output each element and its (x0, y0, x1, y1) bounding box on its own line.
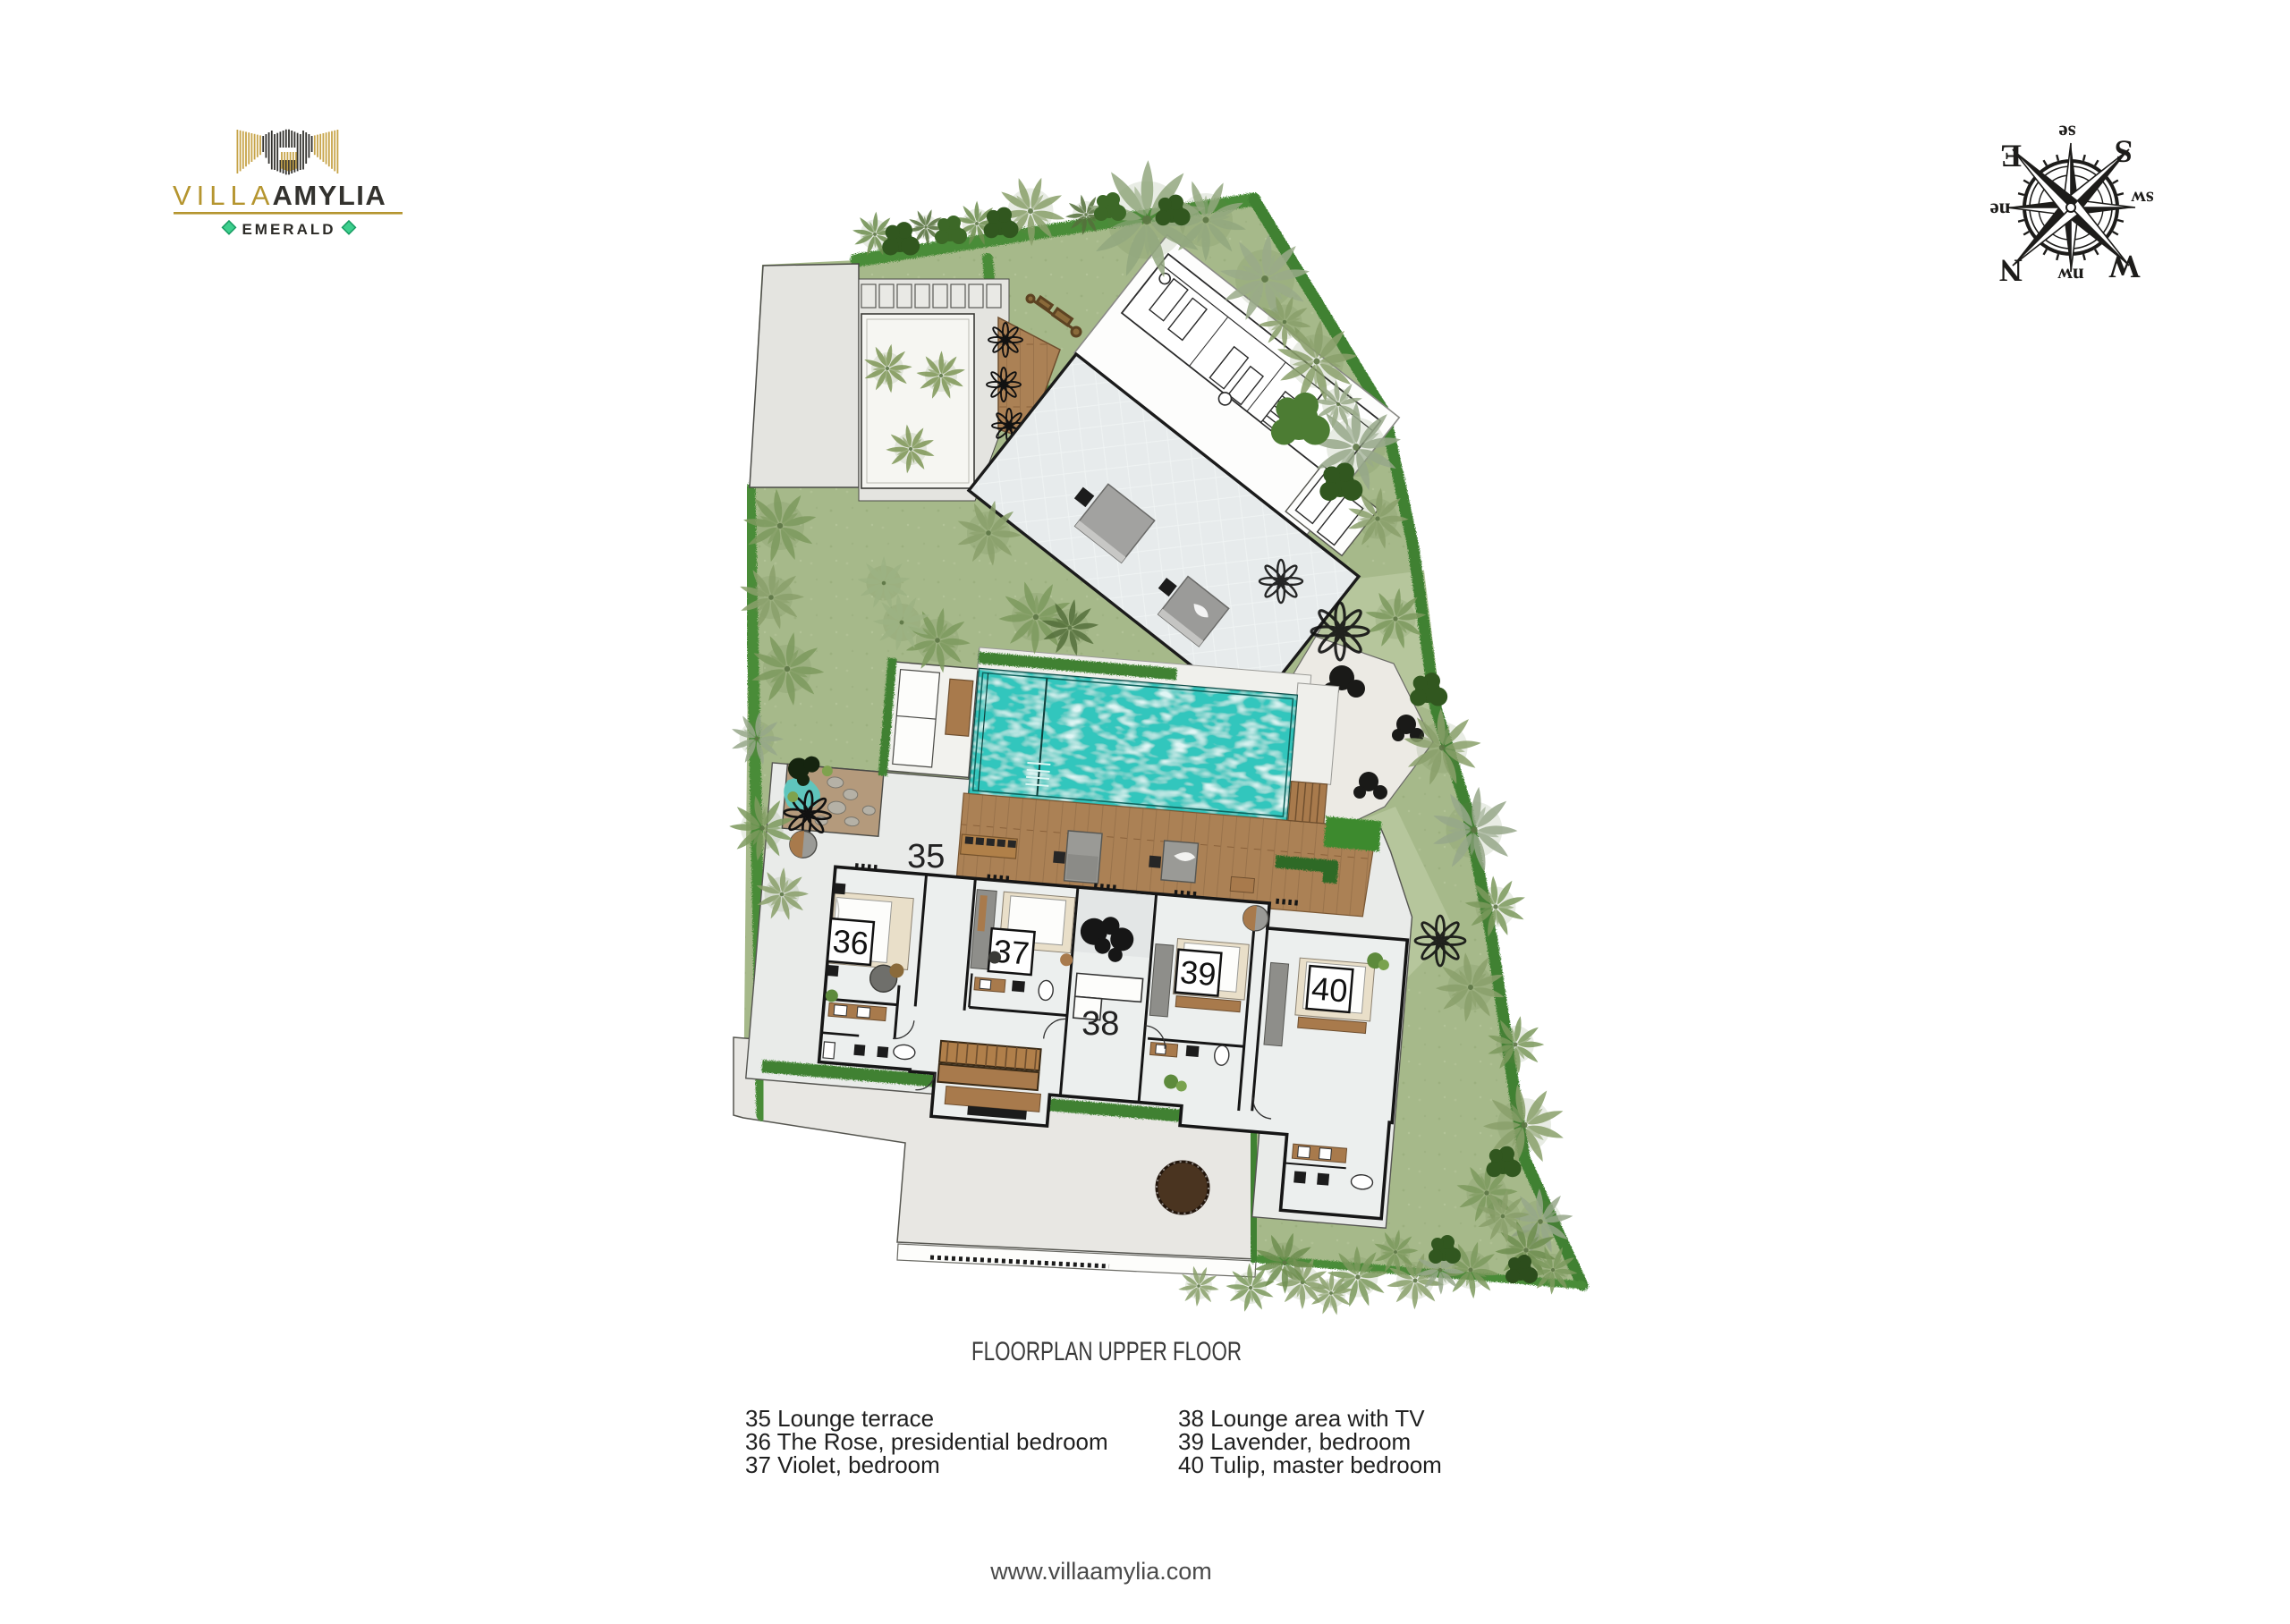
svg-text:EMERALD: EMERALD (242, 221, 335, 238)
svg-text:FLOORPLAN UPPER FLOOR: FLOORPLAN UPPER FLOOR (971, 1337, 1242, 1366)
svg-text:40 Tulip, master bedroom: 40 Tulip, master bedroom (1178, 1451, 1442, 1478)
svg-text:E: E (2000, 139, 2022, 174)
svg-text:www.villaamylia.com: www.villaamylia.com (989, 1558, 1212, 1585)
svg-text:S: S (2115, 134, 2133, 170)
svg-text:W: W (2108, 250, 2141, 285)
svg-text:sw: sw (2131, 188, 2154, 210)
svg-text:N: N (1999, 253, 2023, 289)
svg-text:37 Violet, bedroom: 37 Violet, bedroom (745, 1451, 940, 1478)
svg-text:ne: ne (1990, 199, 2011, 222)
svg-text:39: 39 (1179, 953, 1217, 993)
svg-text:38: 38 (1081, 1005, 1119, 1043)
svg-text:se: se (2058, 122, 2075, 144)
svg-text:40: 40 (1310, 969, 1349, 1009)
svg-text:VILLAAMYLIA: VILLAAMYLIA (173, 180, 386, 211)
svg-text:nw: nw (2057, 265, 2084, 287)
svg-text:36: 36 (831, 922, 869, 961)
svg-text:35: 35 (907, 838, 945, 875)
